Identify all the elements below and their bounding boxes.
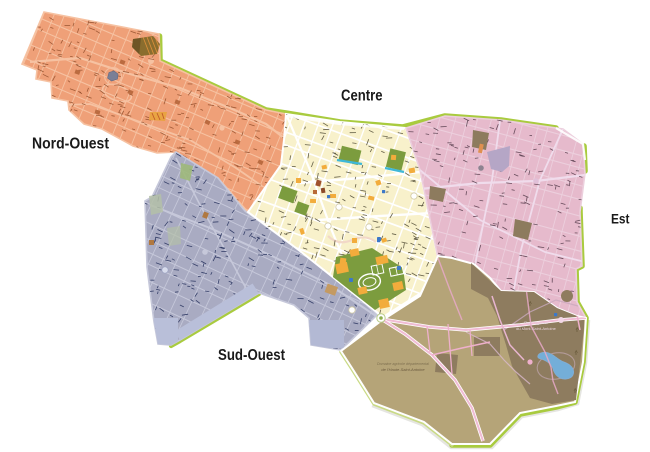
svg-text:Parc régional: Parc régional [524,320,548,325]
svg-text:du Mont-Saint-Antoine: du Mont-Saint-Antoine [516,326,557,331]
svg-text:Centre: Centre [341,88,383,105]
svg-text:Domaine agricole départemental: Domaine agricole départemental [377,362,429,366]
svg-text:Est: Est [611,211,630,227]
svg-text:Sud-Ouest: Sud-Ouest [218,347,285,364]
svg-text:de l'Haute-Saint-Antoine: de l'Haute-Saint-Antoine [381,367,425,372]
svg-text:Nord-Ouest: Nord-Ouest [32,136,110,153]
